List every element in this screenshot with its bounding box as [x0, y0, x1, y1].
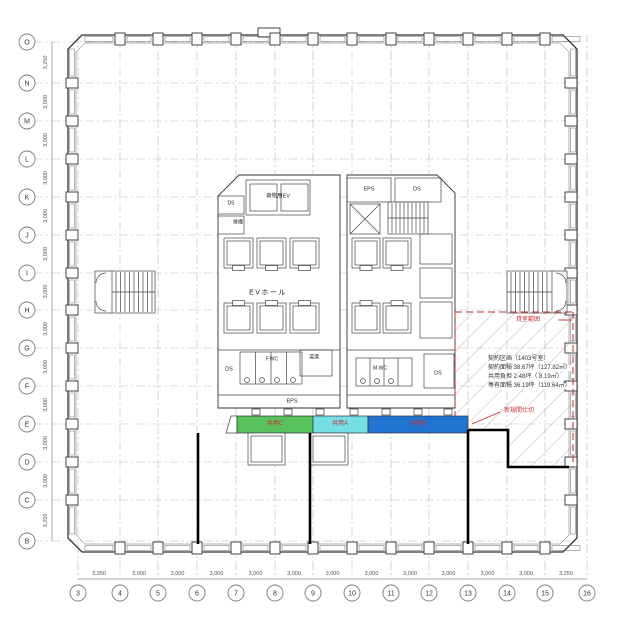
perimeter-column	[502, 33, 512, 45]
window-panel	[571, 507, 576, 534]
elevator-shaft	[352, 303, 380, 333]
row-dim-label: 3,000	[43, 171, 49, 185]
col-dim-label: 3,000	[442, 571, 456, 577]
col-label: 4	[118, 590, 122, 597]
row-label: H	[24, 307, 29, 314]
row-label: D	[24, 459, 29, 466]
perimeter-column	[386, 33, 396, 45]
window-panel	[436, 37, 461, 42]
window-panel	[127, 37, 151, 42]
row-dim-label: 3,000	[43, 247, 49, 261]
window-panel	[398, 37, 422, 42]
row-label: M	[24, 118, 30, 125]
col-dim-label: 3,000	[132, 571, 146, 577]
col-label: 5	[156, 590, 160, 597]
perimeter-column	[565, 78, 577, 88]
col-dim-label: 3,000	[481, 571, 495, 577]
col-label: 6	[195, 590, 199, 597]
window-panel	[85, 37, 113, 42]
perimeter-column	[66, 192, 78, 202]
window-panel	[204, 37, 229, 42]
zone-label-kyoyo-a: 共用A	[332, 421, 348, 427]
perimeter-column	[308, 33, 318, 45]
leased-area-hatch	[455, 312, 573, 467]
lower-shaft	[310, 433, 348, 465]
window-panel	[436, 546, 461, 551]
perimeter-column	[424, 33, 434, 45]
perimeter-column	[270, 33, 280, 45]
row-dim-label: 3,000	[43, 209, 49, 223]
door-frame	[252, 409, 260, 415]
row-label: L	[25, 156, 29, 163]
window-panel	[571, 204, 576, 228]
window-panel	[571, 242, 576, 266]
col-label: 14	[503, 590, 511, 597]
perimeter-column	[153, 33, 163, 45]
lease-info-line-4: 専有面積 36.19坪（119.64㎡）	[487, 383, 572, 389]
perimeter-column	[386, 542, 396, 554]
elevator-door	[233, 266, 245, 271]
perimeter-column	[347, 542, 357, 554]
window-panel	[70, 507, 75, 534]
perimeter-column	[424, 542, 434, 554]
row-label: N	[24, 80, 29, 87]
row-dim-label: 3,000	[43, 95, 49, 109]
window-panel	[243, 546, 268, 551]
door-frame	[284, 409, 292, 415]
elevator-door	[233, 301, 245, 306]
row-dim-label: 3,000	[43, 398, 49, 412]
perimeter-column	[66, 343, 78, 353]
elevator-shaft	[224, 303, 253, 333]
floorplan-canvas: ONMLKJIHGFEDCB3,2503,0003,0003,0003,0003…	[0, 0, 630, 630]
row-dim-label: 3,000	[43, 360, 49, 374]
lease-boundary-label: 貸室範囲	[515, 317, 541, 323]
row-label: G	[24, 345, 29, 352]
window-panel	[70, 280, 75, 303]
perimeter-column	[66, 78, 78, 88]
perimeter-column	[565, 154, 577, 164]
perimeter-column	[66, 495, 78, 505]
perimeter-column	[347, 33, 357, 45]
ds-mid-left-label: DS	[225, 367, 233, 373]
lower-shaft	[248, 433, 285, 465]
window-panel	[70, 90, 75, 114]
col-dim-label: 3,000	[403, 571, 417, 577]
window-panel	[70, 431, 75, 455]
row-dim-label: 3,000	[43, 436, 49, 450]
col-label: 7	[234, 590, 238, 597]
window-panel	[359, 546, 384, 551]
col-label: 8	[273, 590, 277, 597]
perimeter-column	[192, 33, 202, 45]
cargo-ev-label: 荷物用EV	[266, 194, 290, 200]
mwc-label: M.WC	[373, 367, 387, 372]
col-dim-label: 3,000	[365, 571, 379, 577]
hot-water-label: 湯沸	[309, 356, 319, 361]
col-label: 16	[583, 590, 591, 597]
row-label: J	[25, 232, 29, 239]
perimeter-column	[66, 305, 78, 315]
col-label: 11	[387, 590, 394, 597]
row-dim-label: 3,000	[43, 133, 49, 147]
window-panel	[475, 546, 500, 551]
window-panel	[70, 49, 75, 76]
col-label: 9	[311, 590, 315, 597]
perimeter-column	[565, 495, 577, 505]
elevator-shaft	[290, 238, 319, 268]
floor-plan-svg: ONMLKJIHGFEDCB3,2503,0003,0003,0003,0003…	[0, 0, 630, 630]
window-panel	[282, 546, 306, 551]
col-label: 13	[464, 590, 472, 597]
window-panel	[514, 37, 538, 42]
perimeter-column	[231, 542, 241, 554]
door-frame	[316, 409, 324, 415]
perimeter-column	[231, 33, 241, 45]
elevator-door	[299, 301, 311, 306]
col-dim-label: 3,000	[171, 571, 185, 577]
row-label: K	[25, 194, 30, 201]
window-panel	[165, 546, 190, 551]
row-dim-label: 3,000	[43, 474, 49, 488]
window-panel	[70, 317, 75, 341]
col-label: 12	[425, 590, 433, 597]
row-dim-label: 3,250	[43, 56, 49, 70]
window-panel	[70, 355, 75, 379]
perimeter-column	[565, 192, 577, 202]
window-panel	[475, 37, 500, 42]
window-panel	[571, 469, 576, 493]
window-panel	[127, 546, 151, 551]
row-dim-label: 3,250	[43, 514, 49, 528]
perimeter-column	[115, 33, 125, 45]
window-panel	[571, 128, 576, 152]
window-panel	[70, 128, 75, 152]
lease-info-line-1: 契約区画（1403号室）	[487, 356, 550, 362]
col-dim-label: 3,250	[92, 571, 106, 577]
window-panel	[165, 37, 190, 42]
elevator-door	[299, 266, 311, 271]
row-dim-label: 3,000	[43, 322, 49, 336]
window-panel	[70, 393, 75, 417]
eps-top-label: EPS	[363, 187, 374, 193]
perimeter-column	[565, 116, 577, 126]
window-panel	[70, 469, 75, 493]
elevator-door	[360, 301, 372, 306]
window-panel	[571, 90, 576, 114]
perimeter-column	[153, 542, 163, 554]
row-label: I	[26, 270, 28, 277]
elevator-shaft	[257, 303, 286, 333]
col-dim-label: 3,000	[249, 571, 263, 577]
perimeter-column	[66, 154, 78, 164]
window-panel	[320, 37, 345, 42]
perimeter-column	[66, 116, 78, 126]
col-dim-label: 3,000	[287, 571, 301, 577]
elevator-shaft	[290, 303, 319, 333]
zone-label-kyoyo-b: 共用B	[410, 421, 426, 427]
lease-info-line-2: 契約面積 38.67坪（127.82㎡）	[487, 365, 572, 371]
window-panel	[398, 546, 422, 551]
elevator-door	[391, 301, 403, 306]
perimeter-column	[270, 542, 280, 554]
elevator-door	[266, 301, 278, 306]
row-label: F	[25, 383, 29, 390]
perimeter-column	[115, 542, 125, 554]
window-panel	[514, 546, 538, 551]
row-dim-label: 3,000	[43, 285, 49, 299]
ds-mid-right-label: DS	[434, 371, 442, 377]
window-panel	[70, 242, 75, 266]
perimeter-column	[66, 268, 78, 278]
elevator-shaft	[257, 238, 286, 268]
window-panel	[282, 37, 306, 42]
perimeter-column	[66, 419, 78, 429]
col-dim-label: 3,000	[326, 571, 340, 577]
perimeter-column	[66, 457, 78, 467]
elevator-shaft	[352, 238, 380, 268]
door-frames	[252, 409, 452, 415]
ds-top-right-label: DS	[413, 187, 421, 193]
perimeter-column	[540, 33, 550, 45]
col-label: 3	[76, 590, 80, 597]
ev-hall-label: EVホール	[249, 290, 287, 297]
door-frame	[350, 409, 358, 415]
col-dim-label: 3,250	[559, 571, 573, 577]
fwc-label: F.WC	[266, 358, 278, 363]
col-dim-label: 3,000	[210, 571, 224, 577]
window-panel	[70, 204, 75, 228]
elevator-door	[391, 266, 403, 271]
window-panel	[359, 37, 384, 42]
window-panel	[70, 166, 75, 190]
window-panel	[85, 546, 113, 551]
perimeter-column	[66, 381, 78, 391]
window-panel	[571, 166, 576, 190]
perimeter-column	[565, 230, 577, 240]
row-label: E	[25, 421, 30, 428]
zone-label-kyoyo-c: 共用C	[267, 421, 283, 427]
door-frame	[444, 409, 452, 415]
elevator-shaft	[383, 303, 411, 333]
new-partition-label: 新規間仕切	[503, 408, 535, 414]
perimeter-column	[502, 542, 512, 554]
window-panel	[571, 280, 576, 303]
window-panel	[204, 546, 229, 551]
elevator-shaft	[383, 238, 411, 268]
door-frame	[382, 409, 390, 415]
window-panel	[571, 49, 576, 76]
col-label: 15	[541, 590, 549, 597]
perimeter-column	[463, 33, 473, 45]
elevator-shaft	[224, 238, 253, 268]
ds-top-left-label: DS	[228, 202, 235, 207]
elevator-door	[360, 266, 372, 271]
lease-info-line-3: 共用負担 2.48坪（ 8.19㎡）	[487, 374, 564, 380]
perimeter-column	[66, 230, 78, 240]
row-label: B	[25, 538, 30, 545]
perimeter-column	[540, 542, 550, 554]
col-dim-label: 3,000	[519, 571, 533, 577]
window-panel	[320, 546, 345, 551]
row-label: O	[24, 39, 30, 46]
elevator-door	[266, 266, 278, 271]
eps-bottom-label: EPS	[286, 399, 297, 405]
row-label: C	[24, 497, 29, 504]
smoke-vent-label: 排煙	[233, 221, 243, 226]
stair-east	[507, 271, 567, 313]
col-label: 10	[348, 590, 356, 597]
door-frame	[414, 409, 422, 415]
